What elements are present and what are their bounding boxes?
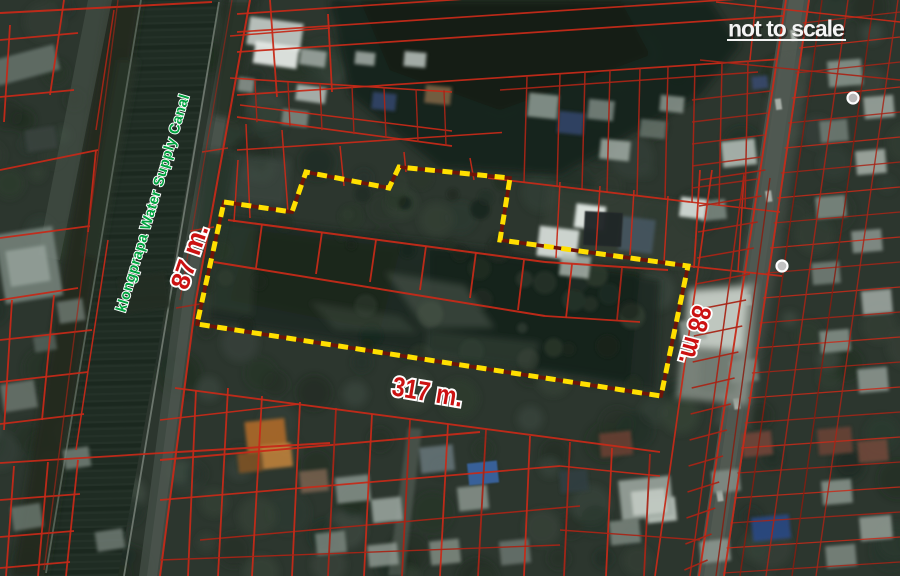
svg-text:not to scale: not to scale — [728, 16, 844, 42]
